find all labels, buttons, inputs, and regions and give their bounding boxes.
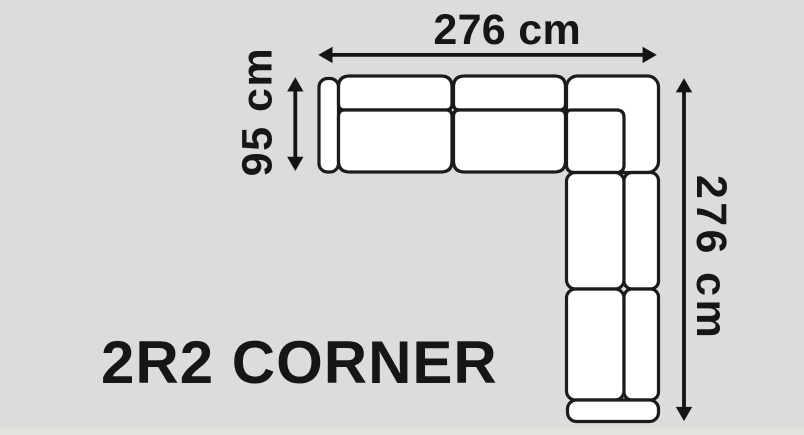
svg-text:276 cm: 276 cm <box>687 175 735 341</box>
svg-text:2R2 CORNER: 2R2 CORNER <box>101 329 498 396</box>
svg-text:95 cm: 95 cm <box>234 47 282 176</box>
svg-text:276 cm: 276 cm <box>433 6 581 54</box>
